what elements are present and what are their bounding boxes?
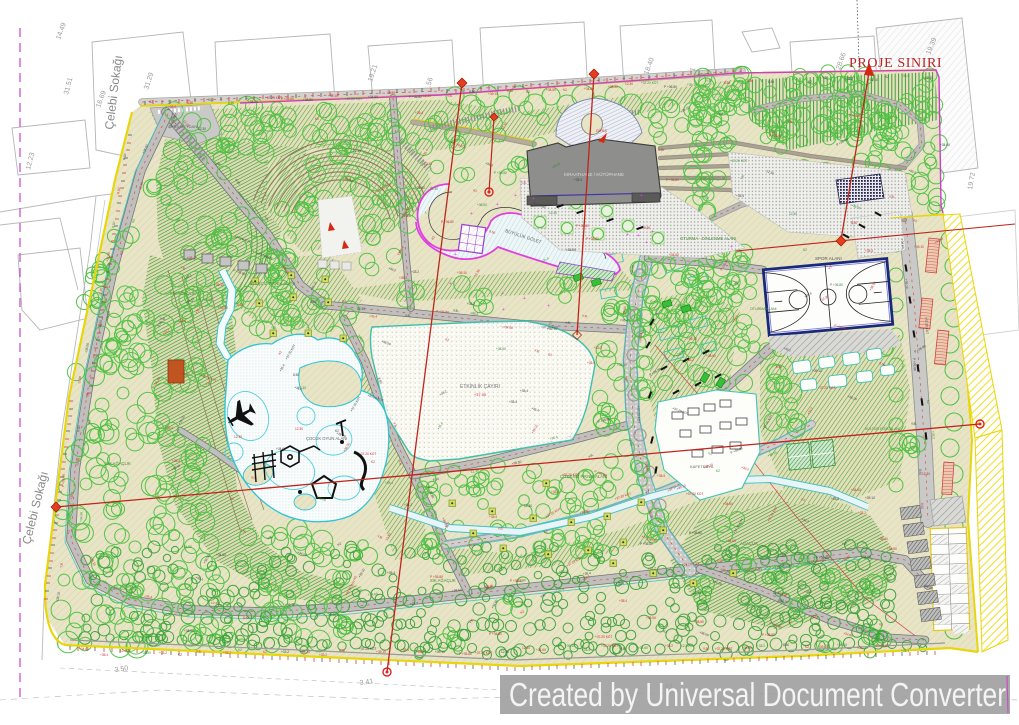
svg-text:+38.50: +38.50 bbox=[546, 88, 556, 92]
svg-text:+: + bbox=[502, 307, 505, 313]
svg-text:12.30: 12.30 bbox=[198, 127, 206, 131]
svg-text:12.30: 12.30 bbox=[501, 650, 509, 654]
svg-text:K2: K2 bbox=[371, 460, 375, 464]
svg-text:Y.B.: Y.B. bbox=[405, 314, 411, 318]
svg-text:Y.B.: Y.B. bbox=[842, 541, 848, 546]
svg-text:+33.2: +33.2 bbox=[778, 554, 786, 558]
svg-text:K2: K2 bbox=[716, 469, 720, 473]
svg-text:8.50: 8.50 bbox=[243, 616, 250, 620]
svg-text:8.50: 8.50 bbox=[469, 90, 475, 94]
svg-text:8.50: 8.50 bbox=[293, 373, 299, 377]
svg-text:P +36.80: P +36.80 bbox=[689, 531, 702, 535]
svg-text:KIRAATHANE / KÜTÜPHANE: KIRAATHANE / KÜTÜPHANE bbox=[564, 171, 624, 177]
svg-text:+35.4: +35.4 bbox=[831, 497, 839, 501]
svg-text:+: + bbox=[637, 233, 640, 239]
svg-text:8.50: 8.50 bbox=[717, 558, 724, 563]
svg-text:+35.4: +35.4 bbox=[736, 194, 744, 198]
svg-text:K2: K2 bbox=[263, 650, 267, 654]
svg-text:12.30: 12.30 bbox=[387, 91, 395, 95]
svg-text:+33.2: +33.2 bbox=[665, 644, 673, 648]
svg-text:+39.10: +39.10 bbox=[878, 537, 888, 541]
svg-text:+39.10: +39.10 bbox=[435, 650, 445, 654]
svg-text:+33.2: +33.2 bbox=[159, 651, 167, 655]
svg-text:12.30: 12.30 bbox=[789, 212, 797, 216]
svg-text:Y.B.: Y.B. bbox=[271, 326, 277, 330]
svg-text:P +36.80: P +36.80 bbox=[459, 652, 472, 656]
svg-text:Created by Universal Document: Created by Universal Document Converter bbox=[509, 676, 1006, 713]
svg-text:SIK AĞAÇLIK: SIK AĞAÇLIK bbox=[430, 578, 456, 583]
svg-text:12.30: 12.30 bbox=[211, 601, 219, 605]
svg-text:8.50: 8.50 bbox=[724, 81, 730, 85]
svg-text:Y.B.: Y.B. bbox=[787, 120, 793, 124]
svg-text:+35.4: +35.4 bbox=[509, 400, 517, 404]
svg-text:+33.2: +33.2 bbox=[319, 653, 327, 657]
svg-text:+37.20 KOT: +37.20 KOT bbox=[359, 647, 376, 651]
svg-text:+34.60: +34.60 bbox=[182, 545, 192, 549]
svg-text:OTURMA - DİNLENME ALANI: OTURMA - DİNLENME ALANI bbox=[680, 236, 736, 241]
svg-text:+37.20 KOT: +37.20 KOT bbox=[595, 635, 612, 639]
svg-text:+39.10: +39.10 bbox=[328, 94, 338, 98]
svg-text:+35.4: +35.4 bbox=[620, 318, 628, 322]
svg-text:P +36.80: P +36.80 bbox=[441, 220, 454, 224]
svg-text:+39.10: +39.10 bbox=[687, 337, 697, 341]
svg-text:+38.50: +38.50 bbox=[694, 620, 704, 624]
svg-text:+39.10: +39.10 bbox=[214, 283, 224, 287]
svg-text:P +36.80: P +36.80 bbox=[409, 95, 422, 99]
svg-text:+39.10: +39.10 bbox=[559, 570, 569, 574]
svg-text:12.30: 12.30 bbox=[693, 591, 701, 595]
svg-text:Y.B.: Y.B. bbox=[453, 309, 459, 313]
svg-text:12.30: 12.30 bbox=[357, 307, 365, 311]
svg-text:+: + bbox=[547, 303, 550, 309]
svg-text:K2: K2 bbox=[719, 112, 723, 116]
svg-text:+35.4: +35.4 bbox=[100, 653, 108, 657]
svg-text:+35.4: +35.4 bbox=[178, 319, 186, 323]
svg-text:K2: K2 bbox=[335, 429, 339, 433]
svg-text:+39.10: +39.10 bbox=[218, 306, 228, 310]
svg-text:+34.60: +34.60 bbox=[726, 539, 736, 543]
svg-text:+39.10: +39.10 bbox=[865, 496, 875, 500]
svg-text:K2: K2 bbox=[230, 497, 234, 501]
svg-text:+: + bbox=[640, 193, 643, 199]
svg-text:8.50: 8.50 bbox=[339, 649, 345, 653]
svg-text:+39.10: +39.10 bbox=[565, 644, 575, 648]
svg-text:P +36.80: P +36.80 bbox=[576, 224, 589, 228]
svg-text:P +36.80: P +36.80 bbox=[494, 171, 507, 175]
svg-text:Y.B.: Y.B. bbox=[447, 94, 453, 98]
svg-text:Y.B.: Y.B. bbox=[911, 422, 917, 426]
svg-text:8.50: 8.50 bbox=[228, 101, 234, 105]
svg-text:K2: K2 bbox=[926, 400, 930, 404]
svg-text:+34.60: +34.60 bbox=[216, 553, 226, 557]
svg-text:+35.4: +35.4 bbox=[901, 74, 909, 78]
svg-text:K2: K2 bbox=[563, 88, 567, 92]
svg-text:+38.50: +38.50 bbox=[248, 100, 258, 104]
svg-text:ATEŞÇİZ PİKNİK ALANI: ATEŞÇİZ PİKNİK ALANI bbox=[250, 281, 295, 286]
svg-text:+38.50: +38.50 bbox=[646, 616, 656, 620]
svg-text:+: + bbox=[626, 232, 629, 238]
svg-text:+34.60: +34.60 bbox=[415, 186, 425, 190]
svg-text:+37.20 KOT: +37.20 KOT bbox=[601, 644, 618, 648]
svg-text:+33.2: +33.2 bbox=[168, 105, 176, 109]
svg-text:+39.10: +39.10 bbox=[180, 372, 190, 376]
svg-text:+39.10: +39.10 bbox=[457, 271, 467, 275]
svg-text:+33.2: +33.2 bbox=[551, 490, 559, 494]
svg-text:P +36.80: P +36.80 bbox=[586, 237, 599, 241]
svg-text:K2: K2 bbox=[808, 80, 812, 84]
svg-text:Y.B.: Y.B. bbox=[624, 376, 628, 382]
svg-text:+: + bbox=[454, 252, 457, 258]
svg-text:+34.60: +34.60 bbox=[723, 502, 733, 506]
svg-text:+39.10: +39.10 bbox=[376, 650, 386, 654]
svg-text:+: + bbox=[470, 211, 473, 217]
svg-text:K2: K2 bbox=[315, 117, 319, 121]
svg-text:P +36.80: P +36.80 bbox=[830, 283, 843, 287]
svg-text:12.30: 12.30 bbox=[298, 386, 306, 390]
svg-text:+: + bbox=[496, 202, 499, 208]
svg-text:+34.60: +34.60 bbox=[79, 647, 89, 651]
svg-text:+: + bbox=[532, 196, 535, 202]
svg-text:8.50: 8.50 bbox=[918, 469, 922, 476]
svg-text:SIK AĞAÇLIK: SIK AĞAÇLIK bbox=[700, 176, 726, 181]
svg-text:8.50: 8.50 bbox=[920, 503, 924, 510]
svg-text:P +36.80: P +36.80 bbox=[640, 542, 653, 546]
svg-text:P +36.80: P +36.80 bbox=[666, 178, 679, 182]
svg-text:8.50: 8.50 bbox=[747, 79, 753, 83]
svg-text:12.30: 12.30 bbox=[430, 187, 438, 191]
svg-text:P +36.80: P +36.80 bbox=[199, 298, 212, 302]
svg-text:+33.2: +33.2 bbox=[686, 358, 694, 362]
svg-text:12.30: 12.30 bbox=[922, 472, 930, 476]
svg-text:P +36.80: P +36.80 bbox=[876, 644, 889, 648]
svg-text:12.30: 12.30 bbox=[120, 649, 128, 653]
svg-text:12.30: 12.30 bbox=[681, 644, 689, 648]
svg-text:Y.B.: Y.B. bbox=[857, 646, 863, 650]
svg-text:+39.10: +39.10 bbox=[868, 78, 878, 82]
svg-text:+33.2: +33.2 bbox=[757, 644, 765, 648]
svg-text:+35.4: +35.4 bbox=[901, 649, 909, 653]
svg-text:SIK AĞAÇLIK: SIK AĞAÇLIK bbox=[170, 291, 196, 296]
svg-text:OTURMA ALANI: OTURMA ALANI bbox=[750, 307, 777, 311]
svg-text:K2: K2 bbox=[149, 100, 153, 104]
svg-text:8.50: 8.50 bbox=[237, 303, 243, 307]
svg-text:+35.4: +35.4 bbox=[399, 276, 407, 280]
svg-text:P +36.80: P +36.80 bbox=[849, 114, 862, 118]
svg-text:12.30: 12.30 bbox=[423, 94, 431, 98]
svg-text:+34.60: +34.60 bbox=[566, 248, 576, 252]
svg-text:+35.4: +35.4 bbox=[489, 515, 497, 519]
svg-text:+35.4: +35.4 bbox=[657, 474, 665, 478]
svg-text:+35.4: +35.4 bbox=[172, 459, 180, 463]
svg-text:8.50: 8.50 bbox=[310, 300, 316, 304]
svg-text:Y.B.: Y.B. bbox=[582, 314, 588, 318]
svg-text:AĞAÇLIK: AĞAÇLIK bbox=[740, 541, 758, 546]
svg-text:K2: K2 bbox=[342, 299, 346, 303]
svg-text:+37.20 KOT: +37.20 KOT bbox=[345, 97, 362, 101]
svg-text:+33.2: +33.2 bbox=[281, 650, 289, 654]
svg-text:K2: K2 bbox=[803, 248, 807, 252]
svg-text:+39.10: +39.10 bbox=[687, 83, 697, 87]
svg-text:+38.50: +38.50 bbox=[477, 203, 487, 207]
svg-text:SIK AĞAÇLIK: SIK AĞAÇLIK bbox=[110, 586, 136, 591]
svg-text:+33.2: +33.2 bbox=[411, 270, 419, 274]
svg-text:8.50: 8.50 bbox=[187, 101, 193, 105]
svg-text:+: + bbox=[514, 193, 517, 199]
svg-text:Y.B.: Y.B. bbox=[196, 650, 202, 654]
svg-text:+38.50: +38.50 bbox=[706, 354, 716, 358]
svg-text:+35.4: +35.4 bbox=[401, 648, 409, 652]
svg-text:P +36.80: P +36.80 bbox=[769, 134, 782, 138]
svg-text:8.50: 8.50 bbox=[776, 365, 782, 369]
svg-text:PROJE SINIRI: PROJE SINIRI bbox=[849, 56, 942, 71]
svg-text:+38.50: +38.50 bbox=[837, 643, 847, 647]
svg-text:+33.2: +33.2 bbox=[223, 651, 231, 655]
svg-text:+33.2: +33.2 bbox=[206, 98, 214, 102]
svg-text:+35.4: +35.4 bbox=[369, 314, 378, 319]
svg-text:+34.60: +34.60 bbox=[79, 512, 84, 522]
svg-text:+35.4: +35.4 bbox=[865, 249, 873, 253]
svg-text:+37.20 KOT: +37.20 KOT bbox=[715, 647, 732, 651]
svg-text:Y.B.: Y.B. bbox=[565, 321, 571, 325]
svg-text:+35.4: +35.4 bbox=[187, 256, 195, 260]
svg-text:Y.B.: Y.B. bbox=[706, 79, 712, 83]
svg-text:+39.10: +39.10 bbox=[285, 602, 295, 607]
svg-text:+38.50: +38.50 bbox=[141, 651, 151, 655]
svg-text:K2: K2 bbox=[178, 653, 182, 657]
svg-text:+34.60: +34.60 bbox=[584, 87, 594, 91]
svg-text:+37.20 KOT: +37.20 KOT bbox=[730, 159, 747, 163]
svg-text:+33.2: +33.2 bbox=[804, 590, 812, 594]
svg-text:Y.B.: Y.B. bbox=[620, 647, 626, 651]
svg-text:+: + bbox=[501, 291, 504, 297]
svg-text:8.50: 8.50 bbox=[783, 643, 789, 647]
svg-text:+34.60: +34.60 bbox=[940, 143, 950, 147]
svg-text:P +36.80: P +36.80 bbox=[762, 633, 775, 637]
svg-text:+33.2: +33.2 bbox=[845, 77, 853, 81]
svg-text:SPOR ALANI: SPOR ALANI bbox=[815, 256, 842, 261]
svg-text:ETKİNLİK ÇAYIRI: ETKİNLİK ÇAYIRI bbox=[460, 383, 500, 390]
svg-text:+: + bbox=[449, 281, 452, 287]
svg-text:+39.10: +39.10 bbox=[488, 92, 498, 96]
svg-text:12.30: 12.30 bbox=[522, 646, 530, 650]
svg-text:+35.4: +35.4 bbox=[387, 571, 395, 575]
svg-text:12.30: 12.30 bbox=[402, 214, 410, 218]
svg-text:12.30: 12.30 bbox=[925, 76, 933, 80]
svg-text:Y.B.: Y.B. bbox=[703, 647, 709, 651]
svg-text:ÇİTDENİZ PİKNİK ALANI: ÇİTDENİZ PİKNİK ALANI bbox=[560, 474, 607, 479]
svg-text:8.50: 8.50 bbox=[768, 80, 774, 84]
svg-text:+38.50: +38.50 bbox=[184, 629, 194, 633]
svg-text:+: + bbox=[523, 296, 526, 302]
svg-text:+34.60: +34.60 bbox=[669, 253, 679, 257]
svg-text:+35.4: +35.4 bbox=[415, 111, 423, 115]
svg-text:12.30: 12.30 bbox=[353, 149, 361, 153]
svg-text:8.50: 8.50 bbox=[644, 226, 650, 230]
svg-text:+37.20 KOT: +37.20 KOT bbox=[265, 96, 282, 100]
svg-text:GİRİŞ: GİRİŞ bbox=[596, 128, 607, 133]
svg-text:12.30: 12.30 bbox=[424, 162, 432, 166]
svg-text:+37.20 KOT: +37.20 KOT bbox=[641, 81, 658, 85]
svg-text:+34.60: +34.60 bbox=[742, 646, 752, 650]
svg-text:+34.60: +34.60 bbox=[276, 447, 286, 451]
svg-text:+: + bbox=[655, 311, 658, 317]
svg-text:8.50: 8.50 bbox=[330, 613, 337, 617]
svg-text:8.50: 8.50 bbox=[851, 221, 857, 225]
svg-text:+: + bbox=[730, 244, 733, 250]
svg-text:+33.2: +33.2 bbox=[858, 511, 866, 515]
svg-text:K2: K2 bbox=[771, 130, 775, 134]
svg-text:+35.4: +35.4 bbox=[520, 389, 528, 393]
svg-text:8.50: 8.50 bbox=[778, 599, 784, 603]
svg-text:+34.60: +34.60 bbox=[536, 648, 546, 652]
svg-text:+: + bbox=[645, 240, 648, 246]
svg-text:8.50: 8.50 bbox=[507, 89, 513, 93]
svg-text:+38.50: +38.50 bbox=[887, 547, 897, 551]
svg-text:+34.60: +34.60 bbox=[851, 488, 861, 492]
svg-text:Y.B.: Y.B. bbox=[160, 317, 166, 321]
svg-text:GİRİŞ MEYDANI: GİRİŞ MEYDANI bbox=[168, 124, 198, 129]
svg-text:12.30: 12.30 bbox=[295, 427, 303, 431]
svg-text:+37.20 KOT: +37.20 KOT bbox=[359, 452, 376, 456]
svg-text:P +36.80: P +36.80 bbox=[664, 85, 677, 89]
svg-text:P +36.80: P +36.80 bbox=[489, 632, 502, 636]
svg-text:+34.60: +34.60 bbox=[638, 646, 648, 650]
svg-text:+39.10: +39.10 bbox=[914, 245, 924, 249]
svg-text:12.30: 12.30 bbox=[524, 504, 532, 508]
svg-text:+35.4: +35.4 bbox=[582, 648, 590, 652]
svg-text:+39.10: +39.10 bbox=[818, 645, 828, 649]
svg-text:+33.2: +33.2 bbox=[931, 431, 936, 440]
svg-text:12.30: 12.30 bbox=[234, 435, 242, 439]
svg-text:+38.50: +38.50 bbox=[617, 363, 627, 367]
svg-text:+35.4: +35.4 bbox=[574, 178, 582, 182]
svg-text:P +36.80: P +36.80 bbox=[281, 97, 294, 101]
svg-text:+35.4: +35.4 bbox=[619, 599, 627, 603]
svg-text:+37.20 KOT: +37.20 KOT bbox=[818, 386, 835, 390]
svg-text:Y.B.: Y.B. bbox=[782, 77, 788, 81]
svg-text:+38.50: +38.50 bbox=[608, 85, 618, 89]
svg-text:+38.50: +38.50 bbox=[303, 98, 313, 102]
svg-text:+35.4: +35.4 bbox=[587, 361, 595, 365]
svg-text:+37.20 KOT: +37.20 KOT bbox=[475, 651, 492, 655]
svg-text:12.30: 12.30 bbox=[625, 82, 633, 86]
svg-text:+33.2: +33.2 bbox=[594, 346, 602, 350]
svg-text:12.30: 12.30 bbox=[518, 578, 527, 583]
svg-text:K2: K2 bbox=[526, 90, 530, 94]
svg-text:+38.50: +38.50 bbox=[496, 347, 506, 351]
svg-text:K2: K2 bbox=[805, 645, 809, 649]
svg-text:+39.10: +39.10 bbox=[300, 650, 310, 654]
svg-text:Y.B.: Y.B. bbox=[822, 76, 828, 80]
svg-text:+35.4: +35.4 bbox=[165, 426, 173, 430]
svg-text:+37.00: +37.00 bbox=[474, 392, 487, 397]
svg-text:12.30: 12.30 bbox=[549, 211, 557, 215]
svg-text:Y.B.: Y.B. bbox=[889, 195, 895, 199]
svg-text:+35.4: +35.4 bbox=[343, 177, 351, 181]
svg-text:+35.4: +35.4 bbox=[406, 306, 415, 311]
svg-text:+33.2: +33.2 bbox=[416, 650, 424, 654]
svg-text:+37.20 KOT: +37.20 KOT bbox=[686, 492, 703, 496]
svg-text:+34.60: +34.60 bbox=[368, 95, 378, 99]
svg-text:Y.B.: Y.B. bbox=[521, 181, 527, 185]
svg-text:+35.4: +35.4 bbox=[385, 481, 393, 485]
svg-text:+33.2: +33.2 bbox=[404, 503, 412, 507]
svg-text:SIK AĞAÇLIK: SIK AĞAÇLIK bbox=[105, 461, 131, 466]
svg-text:P +36.80: P +36.80 bbox=[61, 474, 66, 487]
svg-text:8.50: 8.50 bbox=[658, 148, 664, 152]
svg-text:+: + bbox=[651, 229, 654, 235]
svg-text:K2: K2 bbox=[238, 648, 242, 652]
svg-text:K2: K2 bbox=[885, 75, 889, 79]
svg-text:+39.10: +39.10 bbox=[812, 369, 822, 373]
svg-text:+34.60: +34.60 bbox=[861, 555, 871, 559]
svg-text:KÜLTÜR FİZİK ALANI: KÜLTÜR FİZİK ALANI bbox=[865, 426, 900, 431]
svg-text:+33.2: +33.2 bbox=[467, 302, 475, 306]
